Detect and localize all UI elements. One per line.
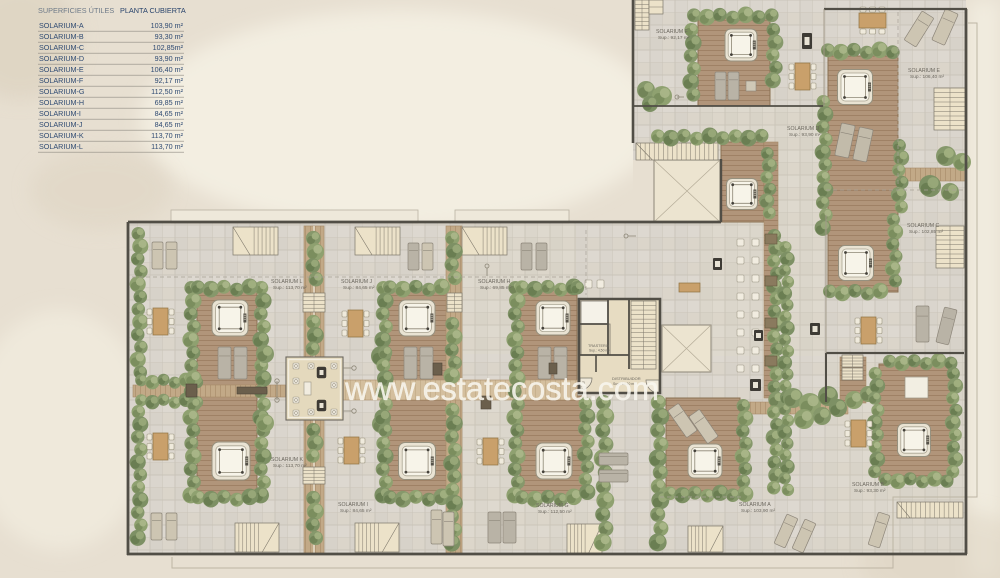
svg-text:106,40 m²: 106,40 m² [151,65,184,74]
svg-text:SOLARIUM B: SOLARIUM B [852,482,885,488]
svg-text:112,50 m²: 112,50 m² [151,87,183,96]
svg-text:84,65 m²: 84,65 m² [155,109,184,118]
svg-text:SOLARIUM I: SOLARIUM I [338,502,368,508]
svg-text:Sup.: 93,90 m²: Sup.: 93,90 m² [789,132,821,138]
svg-text:Sup.: 69,85 m²: Sup.: 69,85 m² [480,285,512,291]
svg-text:Sup.: 92,17 m²: Sup.: 92,17 m² [658,35,690,41]
svg-text:SOLARIUM C: SOLARIUM C [907,223,940,229]
svg-text:PLANTA CUBIERTA: PLANTA CUBIERTA [120,6,186,15]
svg-text:www.estatecosta.com: www.estatecosta.com [344,370,659,407]
svg-text:113,70 m²: 113,70 m² [151,142,183,151]
svg-text:Sup.: 106,40 m²: Sup.: 106,40 m² [910,74,945,80]
svg-text:Sup.: 4,50 m²: Sup.: 4,50 m² [589,349,610,353]
svg-text:SOLARIUM-K: SOLARIUM-K [39,131,84,140]
svg-text:84,65 m²: 84,65 m² [155,120,184,129]
svg-text:SOLARIUM-C: SOLARIUM-C [39,43,84,52]
svg-text:SOLARIUM E: SOLARIUM E [908,68,941,74]
svg-text:SOLARIUM H: SOLARIUM H [478,279,511,285]
svg-text:SOLARIUM-A: SOLARIUM-A [39,21,84,30]
svg-text:102,85m²: 102,85m² [153,43,184,52]
svg-text:92,17 m²: 92,17 m² [155,76,184,85]
svg-text:93,90 m²: 93,90 m² [155,54,184,63]
svg-text:Sup.: 102,85 m²: Sup.: 102,85 m² [909,229,944,235]
svg-text:TRASTERO: TRASTERO [588,344,609,348]
svg-text:Sup.: 93,30 m²: Sup.: 93,30 m² [854,488,886,494]
svg-text:SOLARIUM-E: SOLARIUM-E [39,65,84,74]
svg-text:SOLARIUM-D: SOLARIUM-D [39,54,84,63]
svg-text:Sup.: 103,90 m²: Sup.: 103,90 m² [741,508,776,514]
svg-text:93,30 m²: 93,30 m² [155,32,184,41]
svg-text:SOLARIUM-H: SOLARIUM-H [39,98,84,107]
svg-text:SOLARIUM L: SOLARIUM L [271,279,303,285]
svg-text:SOLARIUM-B: SOLARIUM-B [39,32,84,41]
svg-text:Sup.: 84,65 m²: Sup.: 84,65 m² [340,508,372,514]
svg-text:SOLARIUM J: SOLARIUM J [341,279,373,285]
svg-text:SOLARIUM F: SOLARIUM F [656,29,688,35]
svg-text:SOLARIUM A: SOLARIUM A [739,502,771,508]
svg-text:103,90 m²: 103,90 m² [151,21,184,30]
svg-text:113,70 m²: 113,70 m² [151,131,183,140]
svg-text:SOLARIUM D: SOLARIUM D [787,126,820,132]
svg-text:SOLARIUM-J: SOLARIUM-J [39,120,83,129]
svg-text:SOLARIUM-G: SOLARIUM-G [39,87,85,96]
svg-text:SOLARIUM-F: SOLARIUM-F [39,76,84,85]
svg-text:SOLARIUM K: SOLARIUM K [271,457,304,463]
svg-text:SUPERFICIES ÚTILES: SUPERFICIES ÚTILES [38,6,114,15]
svg-text:SOLARIUM-I: SOLARIUM-I [39,109,81,118]
svg-text:69,85 m²: 69,85 m² [155,98,184,107]
svg-text:Sup.: 113,70 m²: Sup.: 113,70 m² [273,463,307,469]
svg-text:Sup.: 84,65 m²: Sup.: 84,65 m² [343,285,375,291]
svg-text:SOLARIUM G: SOLARIUM G [536,503,569,509]
svg-text:SOLARIUM-L: SOLARIUM-L [39,142,83,151]
svg-text:Sup.: 113,70 m²: Sup.: 113,70 m² [273,285,307,291]
svg-text:Sup.: 112,50 m²: Sup.: 112,50 m² [538,509,572,515]
